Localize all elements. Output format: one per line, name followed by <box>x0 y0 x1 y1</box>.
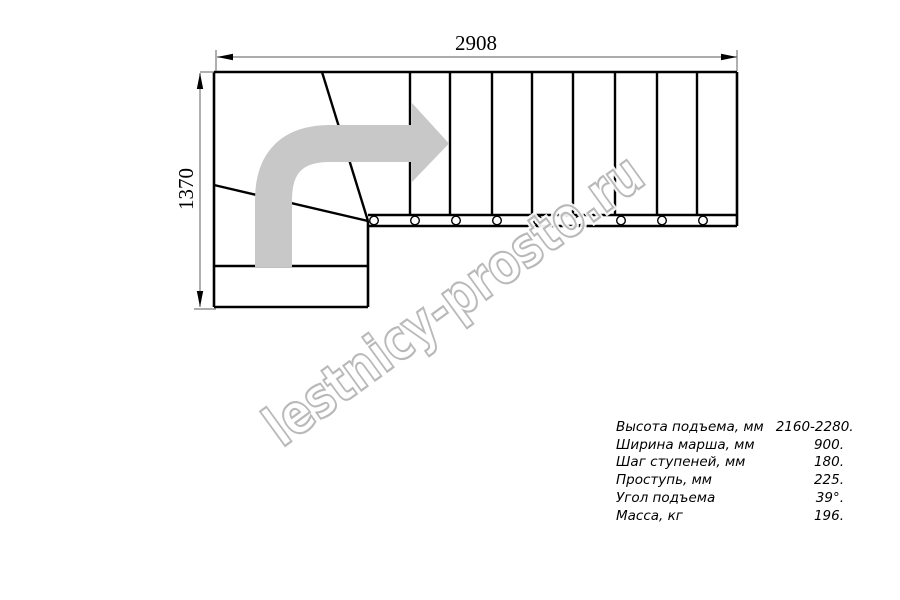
spec-label: Высота подъема, мм <box>616 419 764 437</box>
spec-value: 900. <box>814 437 844 455</box>
spec-table: Высота подъема, мм 2160-2280. Ширина мар… <box>616 419 844 525</box>
spec-label: Проступь, мм <box>616 472 712 490</box>
spec-value: 180. <box>814 454 844 472</box>
spec-label: Угол подъема <box>616 490 715 508</box>
spec-row-step: Шаг ступеней, мм 180. <box>616 454 844 472</box>
spec-value: 196. <box>814 508 844 526</box>
watermark-text: lestnicy-prosto.ru <box>252 141 656 459</box>
spec-row-tread: Проступь, мм 225. <box>616 472 844 490</box>
spec-label: Ширина марша, мм <box>616 437 755 455</box>
spec-value: 2160-2280. <box>776 419 854 437</box>
dimension-width: 2908 <box>216 31 737 71</box>
dimension-height-label: 1370 <box>174 168 198 210</box>
spec-row-angle: Угол подъема 39°. <box>616 490 844 508</box>
spec-row-mass: Масса, кг 196. <box>616 508 844 526</box>
baluster <box>658 216 667 225</box>
baluster <box>493 216 502 225</box>
baluster <box>699 216 708 225</box>
watermark: lestnicy-prosto.ru lestnicy-prosto.ru <box>252 141 656 459</box>
spec-value: 39°. <box>816 490 844 508</box>
spec-value: 225. <box>814 472 844 490</box>
dimension-width-label: 2908 <box>455 31 497 55</box>
baluster <box>370 216 379 225</box>
spec-label: Шаг ступеней, мм <box>616 454 745 472</box>
stair-plan-page: 2908 1370 lestnicy-prosto.ru lestnicy-pr… <box>0 0 900 600</box>
baluster <box>452 216 461 225</box>
spec-label: Масса, кг <box>616 508 683 526</box>
baluster <box>411 216 420 225</box>
direction-arrow-icon <box>274 103 450 267</box>
spec-row-height: Высота подъема, мм 2160-2280. <box>616 419 844 437</box>
spec-row-width: Ширина марша, мм 900. <box>616 437 844 455</box>
dimension-height: 1370 <box>174 72 216 309</box>
